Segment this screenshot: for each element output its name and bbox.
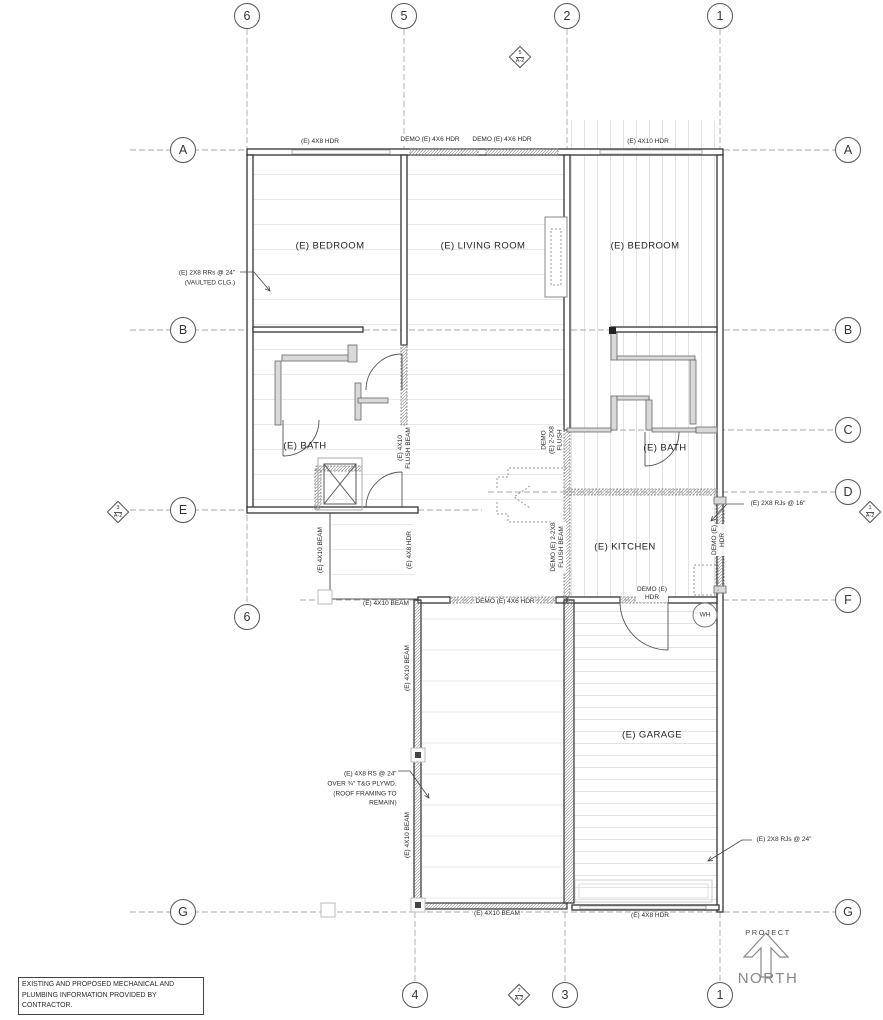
wall-label: DEMO (E) 4X6 HDR bbox=[471, 136, 532, 144]
room-label: (E) BEDROOM bbox=[296, 241, 365, 252]
section-marker-text: 3A-2 bbox=[106, 500, 130, 524]
grid-bubble-E: E bbox=[170, 497, 196, 523]
plan-geometry bbox=[0, 0, 883, 1020]
grid-bubble-A: A bbox=[170, 137, 196, 163]
wall-label: (E) 4X10 BEAM bbox=[473, 910, 521, 918]
section-number: 1 bbox=[866, 505, 873, 513]
room-label: (E) GARAGE bbox=[622, 730, 682, 741]
water-heater-symbol: WH bbox=[693, 603, 718, 628]
grid-bubble-F: F bbox=[835, 587, 861, 613]
grid-bubble-C: C bbox=[835, 417, 861, 443]
section-number: 3 bbox=[114, 505, 121, 513]
room-label: (E) BATH bbox=[643, 443, 686, 454]
sheet-number: A-2 bbox=[114, 513, 123, 520]
wall-label: (E) 4X10 HDR bbox=[626, 138, 670, 146]
wall-label: (E) 4X10 FLUSH BEAM bbox=[397, 426, 413, 470]
wall-label: DEMO (E) 4X6 HDR bbox=[474, 598, 535, 606]
wall-label: (E) 4X10 BEAM bbox=[317, 526, 325, 574]
grid-bubble-3: 3 bbox=[552, 982, 578, 1008]
section-marker-text: 1A-2 bbox=[858, 500, 882, 524]
section-marker: 3A-2 bbox=[106, 500, 130, 524]
sheet-number: A-2 bbox=[866, 513, 875, 520]
wall-label: DEMO (E) 2-2X8 FLUSH bbox=[540, 425, 563, 455]
room-label: (E) BATH bbox=[283, 441, 326, 452]
room-label: (E) BEDROOM bbox=[611, 241, 680, 252]
sheet-number: A-2 bbox=[515, 996, 524, 1003]
section-number: 5 bbox=[516, 50, 523, 58]
grid-bubble-B: B bbox=[835, 317, 861, 343]
section-number: 7 bbox=[515, 988, 522, 996]
annotation-note: (E) 2X8 RJs @ 16" bbox=[751, 499, 806, 509]
grid-bubble-2: 2 bbox=[554, 3, 580, 29]
grid-bubble-1: 1 bbox=[707, 3, 733, 29]
section-marker: 1A-2 bbox=[858, 500, 882, 524]
grid-bubble-B: B bbox=[170, 317, 196, 343]
section-marker: 7A-2 bbox=[507, 983, 531, 1007]
section-marker: 5A-2 bbox=[508, 45, 532, 69]
grid-bubble-1: 1 bbox=[707, 982, 733, 1008]
room-label: (E) LIVING ROOM bbox=[441, 241, 526, 252]
grid-bubble-G: G bbox=[170, 899, 196, 925]
wall-label: DEMO (E) 2-2X8 FLUSH BEAM bbox=[550, 521, 566, 572]
annotation-note: (E) 2X8 RRs @ 24" (VAULTED CLG.) bbox=[179, 268, 235, 288]
wall-label: DEMO (E) HDR bbox=[711, 524, 727, 556]
grid-bubble-6: 6 bbox=[234, 604, 260, 630]
north-label: NORTH bbox=[733, 970, 803, 987]
annotation-note: (E) 4X8 RS @ 24" OVER ¾" T&G PLYWD. (ROO… bbox=[327, 770, 396, 809]
fireplace bbox=[545, 217, 567, 297]
section-marker-text: 7A-2 bbox=[507, 983, 531, 1007]
wall-label: (E) 4X8 HDR bbox=[300, 138, 340, 146]
grid-bubble-5: 5 bbox=[391, 3, 417, 29]
wall-label: (E) 4X10 BEAM bbox=[404, 811, 412, 859]
grid-bubble-4: 4 bbox=[402, 982, 428, 1008]
wall-label: (E) 4X10 BEAM bbox=[404, 644, 412, 692]
wall-label: (E) 4X10 BEAM bbox=[362, 600, 410, 608]
wall-label: (E) 4X8 HDR bbox=[406, 530, 414, 570]
section-marker-text: 5A-2 bbox=[508, 45, 532, 69]
wall-label: (E) 4X8 HDR bbox=[630, 912, 670, 920]
room-label: (E) KITCHEN bbox=[594, 542, 655, 553]
sheet-number: A-2 bbox=[516, 58, 525, 65]
project-north-label: PROJECT bbox=[737, 928, 799, 937]
grid-bubble-G: G bbox=[835, 899, 861, 925]
annotation-note: (E) 2X8 RJs @ 24" bbox=[757, 835, 812, 845]
grid-bubble-A: A bbox=[835, 137, 861, 163]
grid-bubble-6: 6 bbox=[234, 3, 260, 29]
wall-label: DEMO (E) HDR bbox=[636, 586, 668, 602]
wall-label: DEMO (E) 4X6 HDR bbox=[399, 136, 460, 144]
general-note: EXISTING AND PROPOSED MECHANICAL AND PLU… bbox=[18, 977, 204, 1015]
floor-plan-canvas: EXISTING AND PROPOSED MECHANICAL AND PLU… bbox=[0, 0, 883, 1020]
